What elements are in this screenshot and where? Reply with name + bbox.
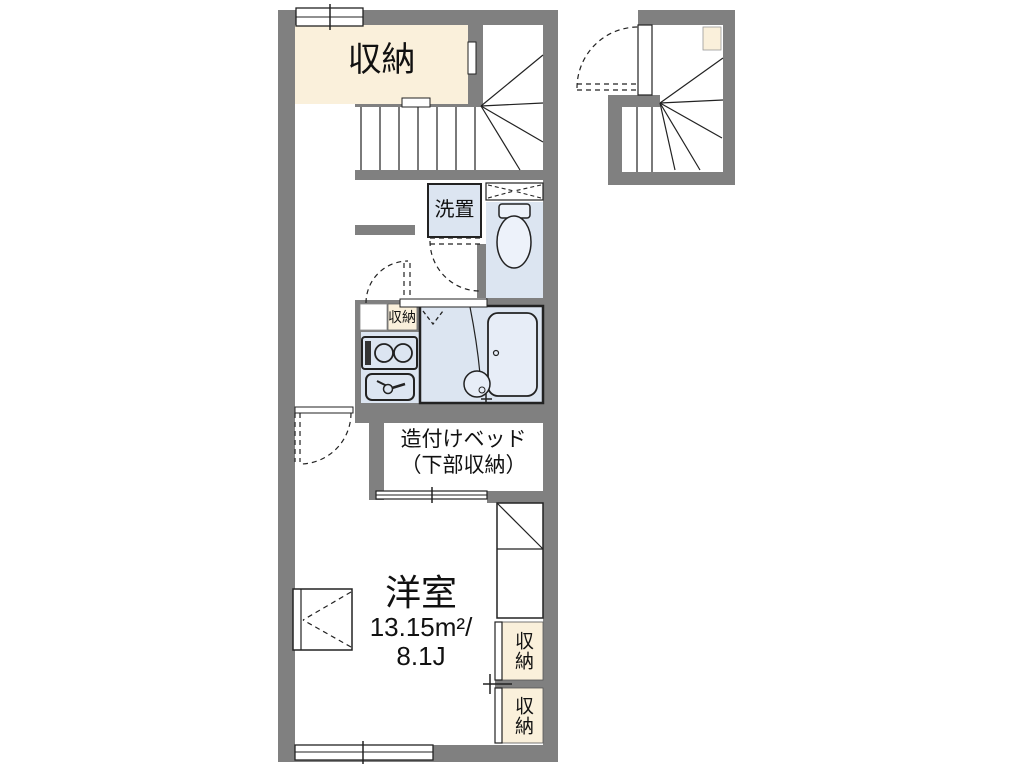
bed-label-line2: （下部収納） [384,453,543,479]
closet-sliding-door [495,688,502,743]
toilet-door-swing [430,238,480,291]
bed-label-line1: 造付けベッド [384,427,543,453]
washer-space-label: 洗置 [428,199,481,221]
built-in-bed-label: 造付けベッド （下部収納） [384,427,543,479]
closet-door-bar [468,42,476,74]
louver-window-icon [486,183,543,200]
small-closet-door-swing [366,261,410,303]
upper-closet-label: 収納 [295,42,468,79]
bath-door-lintel [400,299,487,307]
room-name: 洋室 [321,573,521,613]
bathroom [400,299,543,404]
bottom-window-icon [295,741,433,764]
room-area-sqm: 13.15m²/ [321,613,521,642]
bathtub-icon [488,313,537,396]
annex-closet-box [703,27,721,50]
stair-annex [577,10,735,185]
room-area-tatami: 8.1J [321,642,521,670]
top-window-icon [296,4,363,30]
toilet-icon [497,204,531,268]
kitchen-area [361,332,420,403]
right-closet-lower-label: 収納 [502,688,543,743]
entry-door-swing [577,27,638,90]
entry-door-bar [638,25,652,95]
floorplan-canvas: 収納 洗置 収納 造付けベッド （下部収納） 洋室 13.15m²/ 8.1J … [0,0,1016,772]
small-closet-label: 収納 [386,310,418,325]
room-door-swing [295,407,353,464]
right-closet-upper-label: 収納 [502,622,543,680]
western-room-label: 洋室 13.15m²/ 8.1J [321,573,521,670]
